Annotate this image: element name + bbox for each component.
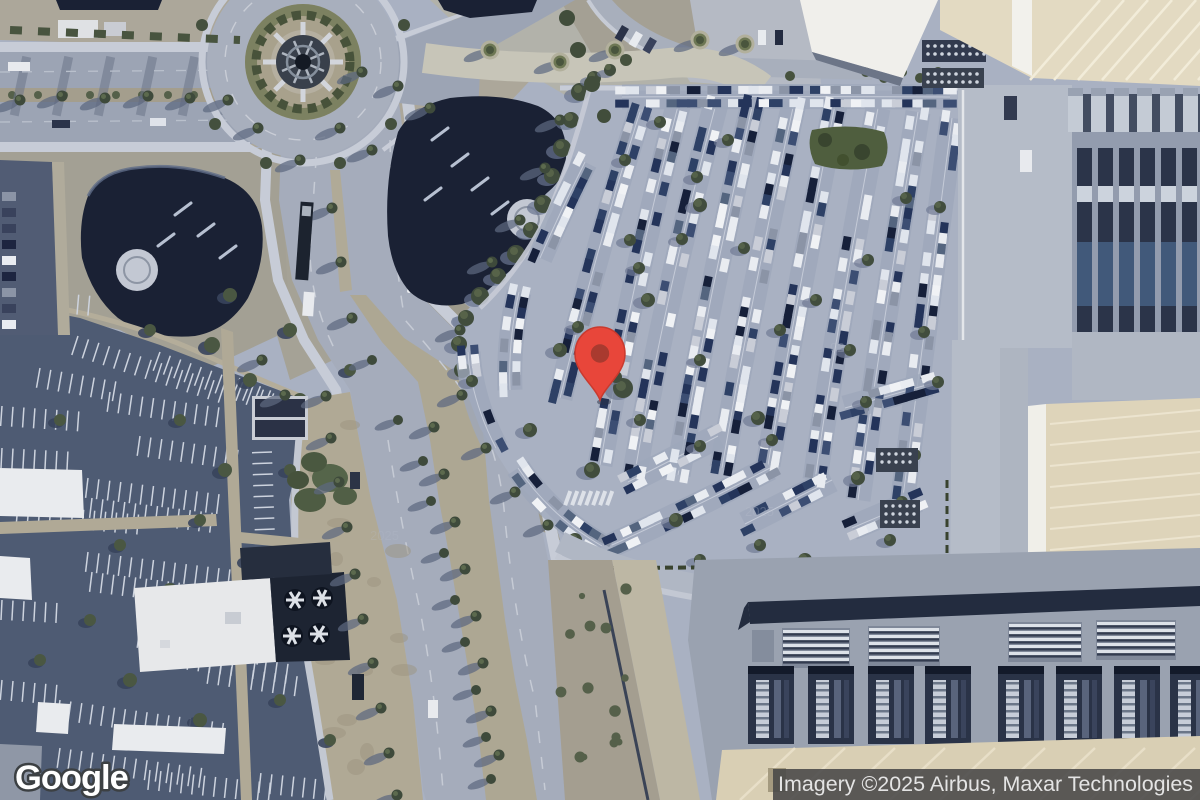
svg-text:Imagery ©2025 Airbus, Maxar Te: Imagery ©2025 Airbus, Maxar Technologies — [778, 772, 1193, 796]
svg-text:Google: Google — [15, 759, 129, 797]
svg-text:2025: 2025 — [745, 504, 774, 519]
svg-text:02: 02 — [830, 340, 844, 355]
svg-text:2025: 2025 — [370, 528, 399, 543]
